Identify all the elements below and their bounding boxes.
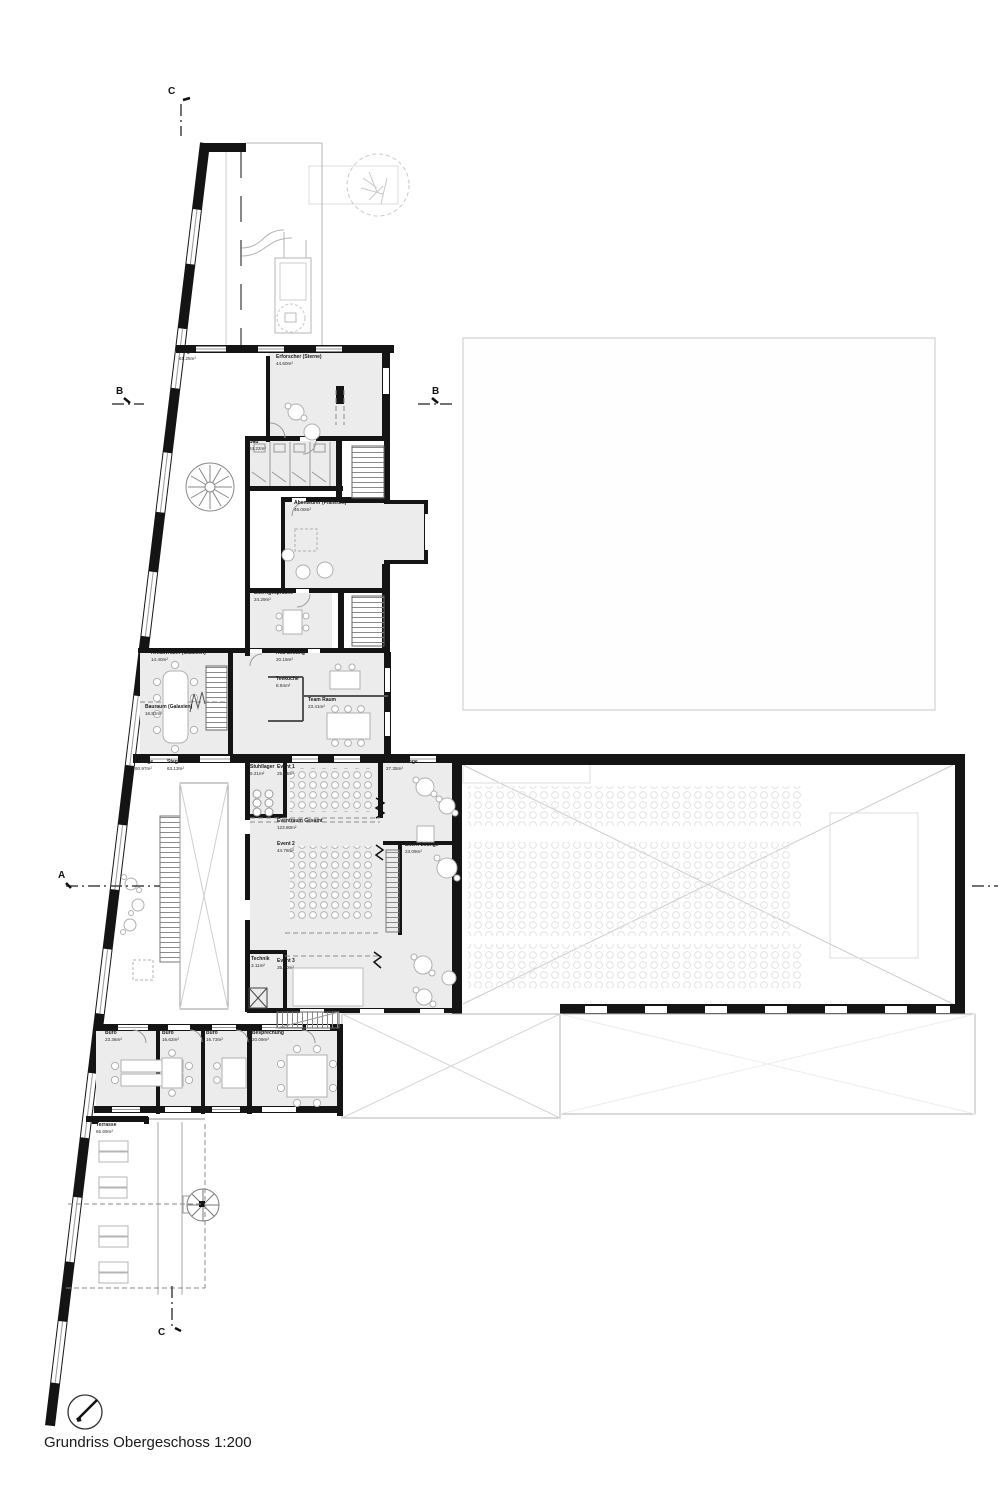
section-marker-a: A [58,870,65,881]
section-marker-c-bottom: C [158,1327,165,1338]
plan-linework [0,0,1000,1500]
site-paths [241,230,306,258]
plan-title: Grundriss Obergeschoss 1:200 [44,1434,252,1451]
room-label: Event 125.43m² [277,765,295,776]
stair-kreativraum [206,666,227,730]
event2-seating [290,846,372,920]
room-label: Steg63.13m² [167,760,184,771]
room-label: Büro23.36m² [105,1031,122,1042]
site-tree [309,154,409,216]
room-label: Technik3.11m² [251,957,270,968]
section-marker-b-right: B [432,386,439,397]
room-label: Still - Lounge27.35m² [386,760,418,771]
stair-eltern [386,850,399,932]
room-label: Stuhllager5.21m² [250,765,274,776]
spiral-stair-terrace [183,1189,219,1221]
room-label: Lounge60.97m² [135,760,153,771]
room-label: Event 335.80m² [277,959,295,970]
site-planter-pond [275,258,311,333]
room-label: Abenteurer (Planeten)45.00m² [294,501,346,512]
room-label: Team Raum23.41m² [308,698,336,709]
room-label: Büro16.73m² [206,1031,223,1042]
floor-plan: Steg61.25m²Erforscher (Sterne)44.60m²Bad… [0,0,1000,1500]
room-label: Büro16.62m² [162,1031,179,1042]
terrace-benches [99,1141,128,1283]
room-label: Teeküche8.84m² [276,677,299,688]
room-label: Erforscher (Sterne)44.60m² [276,355,322,366]
room-label: Eltern Lounge23.09m² [405,843,439,854]
room-label: Event 244.78m² [277,842,295,853]
lounge-furniture [121,875,154,981]
stair-lounge [160,816,180,962]
stair-mid [352,596,384,646]
event1-seating [290,768,372,812]
event-hall [452,754,965,1016]
section-marker-c-top: C [168,86,175,97]
room-label: Kreativraum (Galaxien)14.40m² [151,651,206,662]
adjacent-roof-plot [463,338,935,710]
hall-seating-middle [468,842,790,936]
section-marker-b-left: B [116,386,123,397]
north-indicator-icon [68,1395,102,1429]
room-label: Bad24.22m² [249,440,266,451]
room-label: Elterngespräche24.29m² [254,591,293,602]
bridge-corridor [200,143,322,348]
room-label: Terrasse65.69m² [96,1123,116,1134]
room-label: Bauraum (Galaxien)16.83m² [145,705,192,716]
room-fills [96,353,462,1110]
hall-seating-rear [468,944,802,988]
room-label: Steg61.25m² [179,350,196,361]
stair-north [352,446,384,498]
lower-annex [342,1014,975,1118]
room-label: Eventraum Gesamt123.80m² [277,819,323,830]
spiral-stair-upper [186,463,234,511]
lounge-void [180,783,228,1009]
hall-seating-front [468,786,802,826]
room-label: Besprechung20.09m² [252,1031,284,1042]
event3-stage [293,968,363,1006]
room-label: Kita Leitung20.16m² [276,651,305,662]
